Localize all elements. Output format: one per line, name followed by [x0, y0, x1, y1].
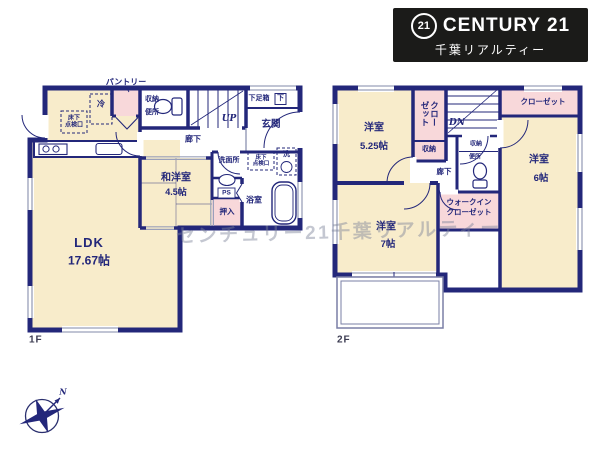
bedroom-b-name: 洋室	[529, 155, 549, 166]
bathroom-label: 浴室	[246, 197, 262, 206]
pipe-space-label: PS	[222, 189, 231, 196]
shoebox-label: 下足箱	[249, 95, 270, 103]
brand-subtitle: 千葉リアルティー	[435, 41, 546, 58]
toilet-label: 便所	[145, 109, 159, 117]
toilet-storage-label: 収納	[145, 96, 159, 104]
floor2-label: 2F	[337, 335, 351, 346]
laundry-label: 洗	[283, 151, 290, 159]
shoebox-abbr-label: 下	[277, 95, 284, 103]
stairs-down-label: DN	[449, 119, 465, 129]
bedroom-a-name: 洋室	[364, 123, 384, 134]
compass-north-label: N	[59, 388, 66, 397]
floor-hatch-label-2: 床下 点検口	[253, 155, 270, 167]
floor1-label: 1F	[29, 335, 43, 346]
brand-logo: 21 CENTURY 21 千葉リアルティー	[393, 8, 588, 62]
floorplan-page: センチュリー21千葉リアルティー 21 CENTURY 21 千葉リアルティー …	[0, 0, 600, 450]
balcony	[337, 277, 443, 328]
pantry-label: パントリー	[106, 79, 146, 88]
compass-icon	[13, 391, 70, 441]
ldk-area: 17.67帖	[68, 254, 110, 267]
floor-hatch-label: 床下 点検口	[65, 115, 83, 128]
hallway-label-1f: 廊下	[185, 136, 201, 145]
wayoshitsu-name: 和洋室	[161, 173, 191, 184]
genkan-label: 玄関	[261, 120, 280, 130]
bedroom-b-area: 6帖	[534, 174, 549, 184]
brand-name: CENTURY 21	[443, 15, 570, 37]
wayoshitsu-area: 4.5帖	[165, 188, 187, 198]
storage-label-2f: 収納	[422, 146, 436, 154]
hallway-label-2f: 廊下	[437, 168, 452, 176]
bedroom-a-area: 5.25帖	[360, 142, 388, 152]
washroom-label: 洗面所	[219, 157, 240, 165]
toilet-label-2f: 便所	[469, 155, 481, 162]
oshiire-label: 押入	[220, 208, 235, 216]
kitchen-counter-icon	[34, 141, 140, 157]
fridge-label: 冷	[97, 101, 105, 110]
stairs-up-label: UP	[222, 115, 237, 125]
toilet-storage-label-2f: 収納	[470, 142, 482, 149]
century21-badge-icon: 21	[411, 13, 437, 39]
closet-b-label: クローゼット	[521, 98, 566, 106]
closet-a-label: クローゼット	[420, 99, 439, 128]
ldk-name: LDK	[74, 236, 104, 250]
